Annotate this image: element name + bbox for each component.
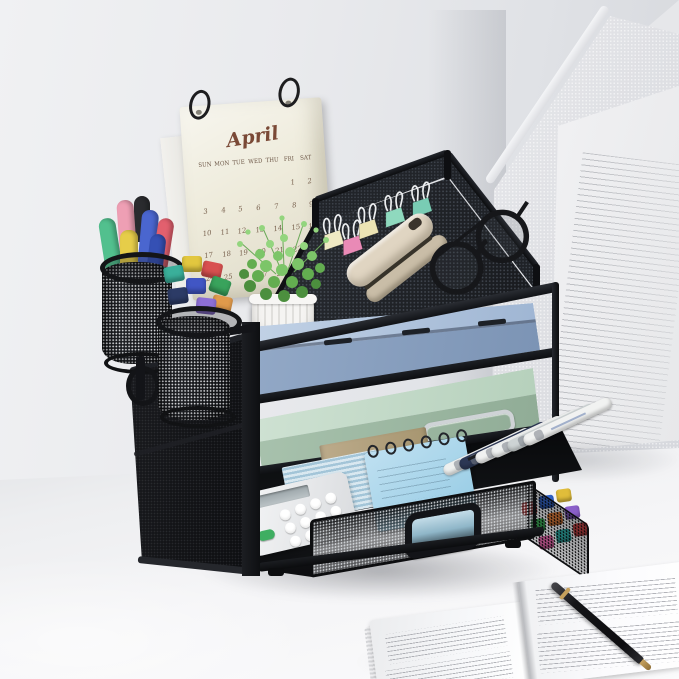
calendar-date [195,187,212,190]
pen-clip [559,587,571,600]
day-header: MON [213,160,230,168]
document-in-holder [550,74,679,452]
organizer-foot [268,568,284,576]
calendar-date [231,185,248,188]
organizer-foot [505,540,521,548]
pen-cup-rim [156,306,242,338]
marker-cap [182,256,202,272]
calendar-date: 3 [196,206,215,217]
day-header: TUE [230,159,247,167]
pen-cup-base [160,406,236,428]
day-header: WED [247,157,264,165]
day-header: FRI [280,155,297,163]
scene: April SUN MON TUE WED THU FRI SAT 123456… [0,0,679,679]
plant-foliage [222,212,344,322]
calendar-date [248,184,265,187]
marker-cap [186,278,206,294]
day-header: SUN [196,161,213,169]
marker-cap [556,488,573,503]
calendar-date: 8 [285,200,304,211]
left-frame-column [242,322,260,576]
day-header: THU [264,156,281,164]
calendar-date [213,186,230,189]
cup-mount-arm [136,356,145,400]
calendar-date: 10 [198,228,217,239]
calendar-date: 1 [283,177,302,188]
marker-cap [163,264,185,283]
day-header: SAT [297,154,314,162]
marker-cap [167,287,189,306]
calendar-date: 17 [199,250,218,261]
calendar-date: 7 [267,201,286,212]
calendar-date [266,182,283,185]
